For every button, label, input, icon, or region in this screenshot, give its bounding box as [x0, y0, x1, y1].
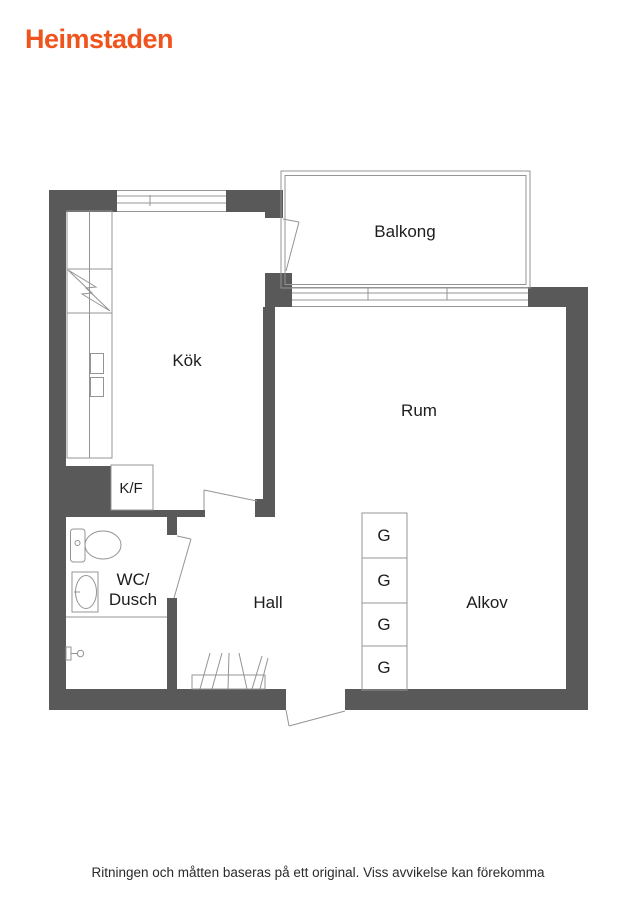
wall-segment	[528, 287, 588, 307]
coat-rack-hatch	[200, 653, 210, 689]
wc-door-leaf	[177, 536, 191, 539]
entrance-door-leaf	[286, 710, 289, 726]
room-label-kf: K/F	[119, 480, 142, 497]
wardrobe-label: G	[377, 615, 390, 634]
wall-segment	[265, 212, 283, 218]
entrance-door-leaf	[289, 711, 345, 726]
mixer-head	[77, 650, 83, 656]
coat-rack-hatch	[228, 653, 229, 689]
coat-rack-icon	[192, 653, 268, 689]
room-label-wc-line2: Dusch	[109, 590, 157, 609]
wardrobe-label: G	[377, 658, 390, 677]
wall-segment	[66, 510, 205, 517]
floor-plan: Balkong Kök Rum Hall Alkov WC/ Dusch K/F…	[0, 0, 636, 900]
room-label-hall: Hall	[253, 593, 282, 612]
room-label-alkov: Alkov	[466, 593, 508, 612]
kitchen-counter-icon	[67, 211, 112, 458]
wall-segment	[566, 287, 588, 710]
balcony-door-leaf	[286, 222, 299, 271]
kitchen-door-leaf	[204, 490, 257, 501]
coat-rack-hatch	[239, 653, 247, 689]
room-label-rum: Rum	[401, 401, 437, 420]
sink-basin	[91, 354, 104, 374]
wardrobe-label: G	[377, 526, 390, 545]
toilet-bowl	[85, 531, 121, 559]
disclaimer-text: Ritningen och måtten baseras på ett orig…	[0, 865, 636, 880]
windows	[117, 191, 528, 307]
coat-rack-hatch	[260, 658, 268, 689]
coat-rack-hatch	[252, 656, 262, 689]
walls	[49, 190, 588, 710]
wall-segment	[265, 273, 292, 307]
shower-mixer-icon	[66, 647, 84, 660]
sink-basin	[91, 378, 104, 397]
coat-rack-hatch	[212, 653, 222, 689]
wall-segment	[49, 190, 66, 710]
wall-segment	[226, 190, 283, 212]
wall-segment	[66, 466, 111, 517]
room-label-balkong: Balkong	[374, 222, 435, 241]
wc-door-leaf	[174, 539, 191, 598]
toilet-icon	[71, 529, 122, 562]
wall-segment	[167, 517, 177, 535]
wall-segment	[345, 689, 588, 710]
mixer-body	[66, 647, 71, 660]
toilet-button	[75, 541, 80, 546]
doors	[174, 219, 345, 726]
wall-segment	[263, 307, 275, 517]
wall-segment	[255, 499, 275, 517]
wall-segment	[49, 689, 286, 710]
room-label-kok: Kök	[172, 351, 202, 370]
room-label-wc-line1: WC/	[116, 570, 149, 589]
wardrobe-label: G	[377, 571, 390, 590]
wall-segment	[167, 598, 177, 689]
sink-icon	[72, 572, 98, 612]
floorplan-page: Heimstaden	[0, 0, 636, 900]
